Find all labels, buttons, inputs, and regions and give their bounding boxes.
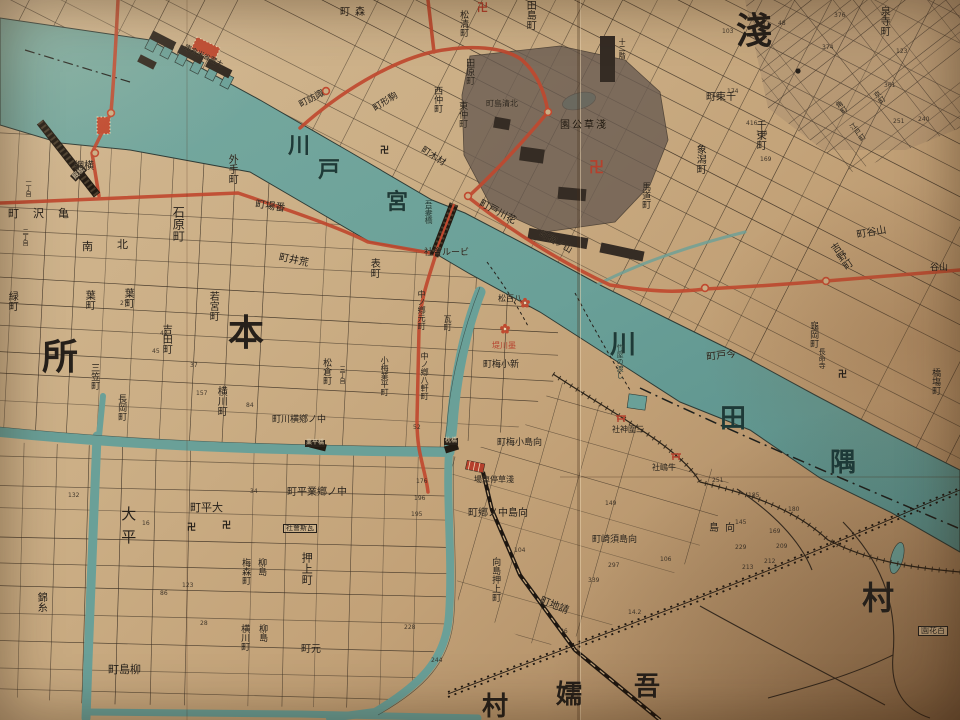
street-grid-line [0, 237, 345, 720]
map-label: 柳島 [256, 558, 265, 576]
lot-number: 174 [727, 88, 738, 95]
map-label: 外手町 [226, 154, 236, 184]
map-label: 町元 [301, 645, 321, 655]
map-label: 淺 [736, 14, 774, 51]
lot-number: 212 [764, 558, 775, 565]
street-grid-line [0, 525, 960, 720]
map-label: 社會ルービ [424, 249, 469, 258]
map-label: 町平業鄕ノ中 [287, 488, 347, 498]
map-label: 村 [862, 582, 896, 615]
lot-number: 251 [712, 477, 723, 484]
map-label: 松清町 [458, 10, 467, 37]
lot-number: 37 [190, 362, 198, 369]
lot-number: 18 [712, 92, 720, 99]
map-label: 中ノ鄕元町 [417, 290, 425, 330]
map-label: 表町 [368, 258, 378, 278]
lot-number: 28 [200, 620, 208, 627]
manji-temple-icon: 卍 [589, 160, 604, 175]
lot-number: 34 [250, 488, 258, 495]
lot-number: 240 [918, 116, 929, 123]
street-grid-line [0, 662, 960, 697]
lot-number: 36 [560, 628, 568, 635]
lot-number: 195 [411, 511, 422, 518]
street-grid-line [0, 298, 960, 711]
map-label: 松倉町 [321, 358, 330, 385]
mukojima-pond [887, 541, 907, 575]
street-grid-line [0, 607, 960, 644]
map-label: 南 [82, 241, 93, 252]
lot-number: 48 [778, 20, 786, 27]
lot-number: 44 [758, 22, 766, 29]
street-grid-line [0, 602, 960, 682]
map-label: 柳島 [257, 624, 266, 642]
map-label: 瓦町 [443, 315, 451, 331]
map-label: 枕橋 [444, 438, 458, 445]
map-label: 町梅小島向 [497, 439, 542, 448]
street-grid-line [0, 257, 317, 720]
lot-number: 14.2 [628, 609, 641, 616]
manji-temple-icon: 卍 [838, 371, 847, 380]
map-label: 梅森町 [240, 558, 249, 585]
lot-number: 106 [660, 556, 671, 563]
map-label: 町川横鄕ノ中 [272, 416, 326, 425]
map-label: 社神圍三 [612, 426, 644, 434]
street-grid-line [225, 327, 960, 720]
map-label: 石原町 [172, 206, 184, 242]
map-label: 谷山 [930, 264, 948, 273]
map-label: 若宮町 [207, 291, 217, 321]
manji-temple-icon: 卍 [380, 147, 389, 156]
street-grid-line [0, 560, 960, 720]
street-grid-line [0, 558, 876, 720]
map-label: 町平大 [190, 502, 223, 513]
map-label: 町崎須島向 [592, 536, 637, 545]
lot-number: 103 [722, 28, 733, 35]
street-grid-line [0, 246, 330, 720]
street-grid-line [0, 594, 960, 720]
map-label: 象潟町 [694, 144, 704, 174]
lot-number: 416 [746, 120, 757, 127]
road-junction-node [823, 278, 830, 285]
lot-number: 104 [514, 547, 525, 554]
map-label: 向島押上町 [490, 557, 499, 602]
map-label: 町梅小新 [483, 361, 519, 370]
lot-number: 42 [160, 330, 168, 337]
map-label: 吉田町 [160, 324, 170, 354]
street-grid-line [334, 0, 377, 720]
lot-number: 361 [884, 82, 895, 89]
map-label: 戸 [318, 160, 342, 182]
map-label: 村 [482, 694, 510, 720]
lot-number: 213 [742, 564, 753, 571]
map-label: 龜岡町 [808, 321, 817, 348]
map-label: 町島柳 [108, 664, 141, 675]
map-label: 町鄕ノ中島向 [468, 509, 528, 519]
map-label: 田島町 [524, 0, 534, 30]
map-label: 横川町 [239, 624, 248, 651]
road-junction-node [92, 150, 99, 157]
map-label: 大平 [120, 506, 135, 552]
map-label: 三丁目 [338, 366, 344, 384]
cherry-blossom-icon [500, 324, 510, 334]
map-label: 社嶋牛 [652, 464, 676, 472]
map-label: 宮 [386, 192, 410, 214]
map-label: 町沢亀 [8, 208, 83, 219]
map-label: 社會斯瓦 [283, 524, 317, 533]
lot-number: 45 [152, 348, 160, 355]
ryounkaku-tower [600, 36, 615, 82]
road-junction-node [465, 193, 472, 200]
street-grid-line [0, 576, 864, 720]
map-label: 川 [610, 332, 638, 359]
map-label: 一丁目 [24, 179, 30, 197]
street-grid-line [0, 226, 352, 720]
road-junction-node [702, 285, 709, 292]
lot-number: 123 [182, 582, 193, 589]
map-label: 北 [117, 239, 128, 250]
map-label: 押上町 [301, 552, 312, 585]
map-label: 田 [720, 406, 748, 433]
street-grid-line [231, 336, 960, 720]
street-grid-line [0, 553, 960, 631]
map-label: 場車停草淺 [474, 476, 514, 484]
lot-number: 16 [142, 520, 150, 527]
street-grid-line [0, 625, 960, 720]
map-label: 十二階 [618, 38, 625, 59]
map-label: 所 [42, 340, 80, 377]
lot-number: 132 [68, 492, 79, 499]
lot-number: 169 [760, 156, 771, 163]
map-label: 三笠町 [89, 363, 98, 390]
lot-number: 209 [776, 543, 787, 550]
road-junction-node [108, 110, 115, 117]
map-label: 吾妻橋 [424, 200, 432, 224]
map-label: 小梅業平町 [380, 356, 388, 396]
map-label: 緑町 [6, 291, 16, 311]
map-label: 二丁目 [21, 228, 27, 246]
map-label: 吾 [634, 674, 662, 701]
map-label: 中ノ鄕八軒町 [420, 352, 428, 400]
map-label: 西仲町 [432, 86, 441, 113]
map-label: 町島清北 [486, 100, 518, 108]
street-grid-line [279, 0, 360, 720]
shrine-dot-icon [795, 68, 800, 73]
lot-number: 251 [893, 118, 904, 125]
map-label: 長岡町 [116, 394, 125, 421]
lot-number: 228 [404, 624, 415, 631]
street-grid-line [0, 531, 960, 609]
street-grid-line [195, 292, 960, 720]
street-grid-line [0, 452, 927, 720]
lot-number: 339 [588, 577, 599, 584]
street-grid-line [0, 432, 936, 720]
map-label: 長命寺 [818, 348, 825, 369]
lot-number: 169 [769, 528, 780, 535]
makurabashi-bridge [445, 446, 458, 450]
map-label: 川 [288, 136, 312, 158]
manji-temple-icon: 卍 [187, 524, 196, 533]
lot-number: 229 [735, 544, 746, 551]
lot-number: 149 [605, 500, 616, 507]
map-label: 錦糸 [35, 592, 45, 612]
map-label: 業平橋 [305, 440, 325, 447]
lot-number: 176 [416, 478, 427, 485]
lot-number: 52 [413, 424, 421, 431]
map-label: 嬬 [556, 682, 584, 709]
shinkomume-pond [627, 394, 647, 410]
map-label: 橋塲町 [930, 368, 939, 395]
lot-number: 196 [414, 495, 425, 502]
lot-number: 27 [120, 300, 128, 307]
lot-number: 86 [160, 590, 168, 597]
lot-number: 185 [748, 492, 759, 499]
map-label: 泉寺町 [878, 6, 888, 36]
map-label: 葉町 [83, 290, 93, 310]
map-label: 町森 [340, 8, 370, 18]
lot-number: 123 [896, 48, 907, 55]
street-grid-line [0, 346, 960, 386]
lot-number: 376 [834, 12, 845, 19]
map-label: 松百八 [498, 295, 522, 303]
map-label: 園花百 [918, 626, 948, 636]
manji-temple-icon: 卍 [477, 2, 488, 13]
lot-number: 144 [756, 130, 767, 137]
lot-number: 84 [246, 402, 254, 409]
map-label: 本 [228, 316, 266, 353]
map-label: 堤川墨 [492, 342, 516, 350]
lot-number: 157 [196, 390, 207, 397]
lot-number: 180 [788, 506, 799, 513]
manji-temple-icon: 卍 [222, 522, 231, 531]
lot-number: 374 [822, 44, 833, 51]
map-canvas [0, 0, 960, 720]
lot-number: 145 [735, 519, 746, 526]
lot-number: 244 [431, 657, 442, 664]
map-label: 東仲町 [457, 101, 466, 128]
map-label: 園公草淺 [560, 121, 608, 131]
map-label: 馬道町 [640, 182, 649, 209]
street-grid-line [0, 599, 854, 720]
map-label: 竹屋の渡し [616, 344, 623, 379]
map-label: 隅 [830, 450, 858, 477]
street-grid-line [0, 579, 960, 616]
map-label: 網横 [74, 162, 94, 172]
asakusa-station [465, 460, 484, 473]
map-label: 田原町 [464, 58, 473, 85]
road-junction-node [545, 109, 552, 116]
map-label: 横川町 [215, 386, 225, 416]
street-grid-line [0, 633, 960, 670]
lot-number: 297 [608, 562, 619, 569]
antique-map-photo: 淺本所村吾嬬村大平川田隅川戸宮園公草淺十二階場車停草淺社會ルービ松百八庫倉米省藏… [0, 0, 960, 720]
street-grid-line [0, 628, 960, 704]
